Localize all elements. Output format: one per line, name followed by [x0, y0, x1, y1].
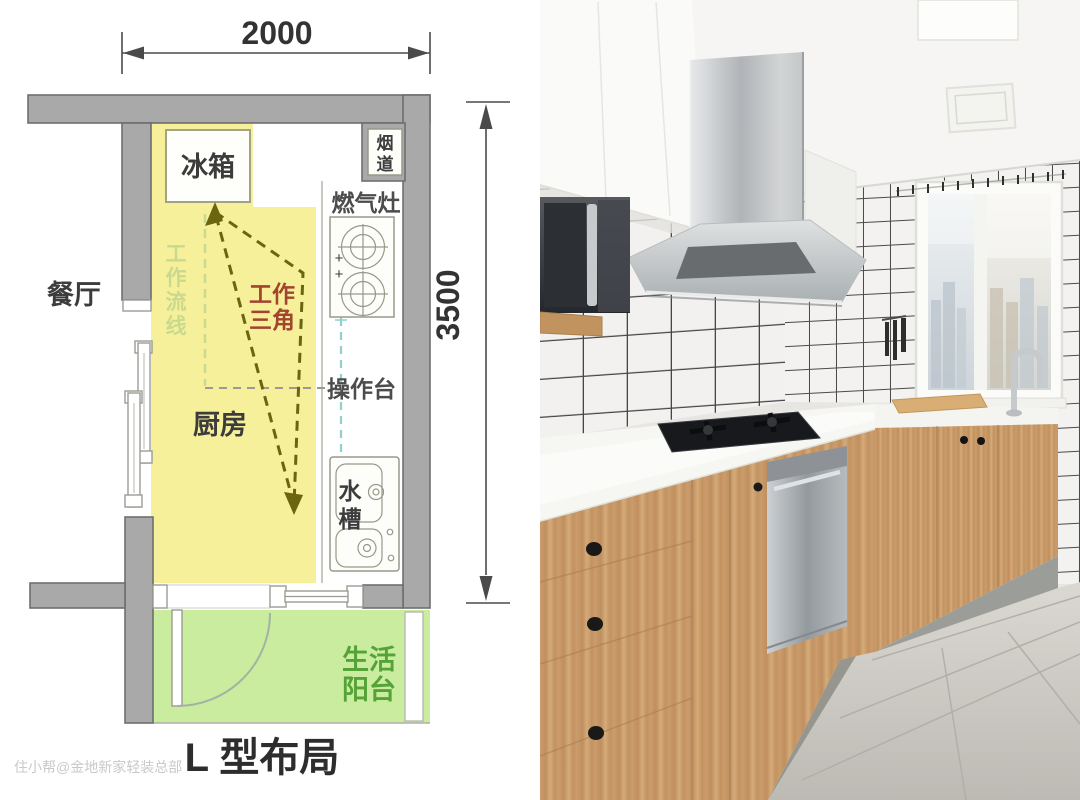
drawer-knob [587, 617, 603, 631]
flow-char-3: 流 [166, 290, 187, 314]
kitchen-label: 厨房 [193, 410, 247, 440]
ceiling-vent [947, 84, 1016, 132]
door-knob [977, 437, 985, 445]
fridge-label: 冰箱 [181, 151, 235, 182]
dining-label: 餐厅 [47, 280, 101, 310]
plus-mark-2: + [335, 266, 344, 283]
door-knob [960, 436, 968, 444]
wall-stub-bottom-right [363, 585, 403, 608]
fridge: 冰箱 [166, 130, 250, 202]
microwave-handle [587, 204, 597, 306]
work-flow-label: 工 作 流 线 [166, 243, 187, 338]
counter-label: 操作台 [327, 376, 396, 402]
triangle-label-line1: 工作 [249, 281, 295, 307]
door-knob [754, 483, 763, 492]
hood-filter [676, 242, 816, 279]
drawer-knob [586, 542, 602, 556]
triangle-label-line2: 三角 [249, 307, 295, 333]
plan-caption: L 型布局 [185, 736, 340, 780]
tile-wall-right-lower [1058, 404, 1080, 584]
balcony-pillar [405, 612, 423, 721]
flow-char-2: 作 [166, 266, 187, 290]
gas-stove: 燃气灶 + + [330, 190, 401, 317]
microwave [540, 197, 630, 313]
flue: 烟 道 [362, 123, 405, 181]
plus-mark-1: + [335, 250, 344, 267]
floor-plan-panel: 2000 3500 [0, 0, 540, 800]
flue-label-char2: 道 [377, 154, 394, 174]
hood-chimney [690, 52, 803, 228]
left-sliding-door-symbol [123, 300, 152, 507]
dimension-width-label: 2000 [241, 15, 312, 51]
flow-char-4: 线 [166, 314, 187, 338]
dimension-height: 3500 [430, 102, 510, 603]
sink-label-char1: 水 [339, 478, 363, 504]
kitchen-photo-svg [540, 0, 1080, 800]
floor-plan-svg: 2000 3500 [0, 0, 540, 800]
bottom-sliding-window-symbol [270, 586, 363, 607]
window-mullion [974, 194, 987, 390]
kitchen-photo-panel [540, 0, 1080, 800]
wall-left-upper [122, 123, 151, 300]
drawer-knob [588, 726, 604, 740]
wall-top [28, 95, 430, 123]
wall-arm-left [30, 583, 125, 608]
watermark: 住小帮@金地新家轻装总部 [14, 759, 182, 775]
stove-label: 燃气灶 [332, 190, 401, 216]
dimension-height-label: 3500 [430, 269, 466, 340]
balcony-label-line2: 阳台 [342, 674, 396, 705]
dimension-width: 2000 [122, 15, 430, 74]
kitchen-layout-infographic: 2000 3500 [0, 0, 1080, 800]
wall-left-lower [125, 517, 153, 723]
sink-label-char2: 槽 [339, 506, 362, 532]
wall-right [403, 95, 430, 608]
sink: 水 槽 [330, 457, 399, 571]
ceiling-light-panel [918, 0, 1018, 40]
flue-label-char1: 烟 [377, 133, 394, 153]
dishwasher [767, 446, 847, 654]
balcony-label-line1: 生活 [342, 645, 396, 675]
flow-char-1: 工 [166, 243, 187, 266]
